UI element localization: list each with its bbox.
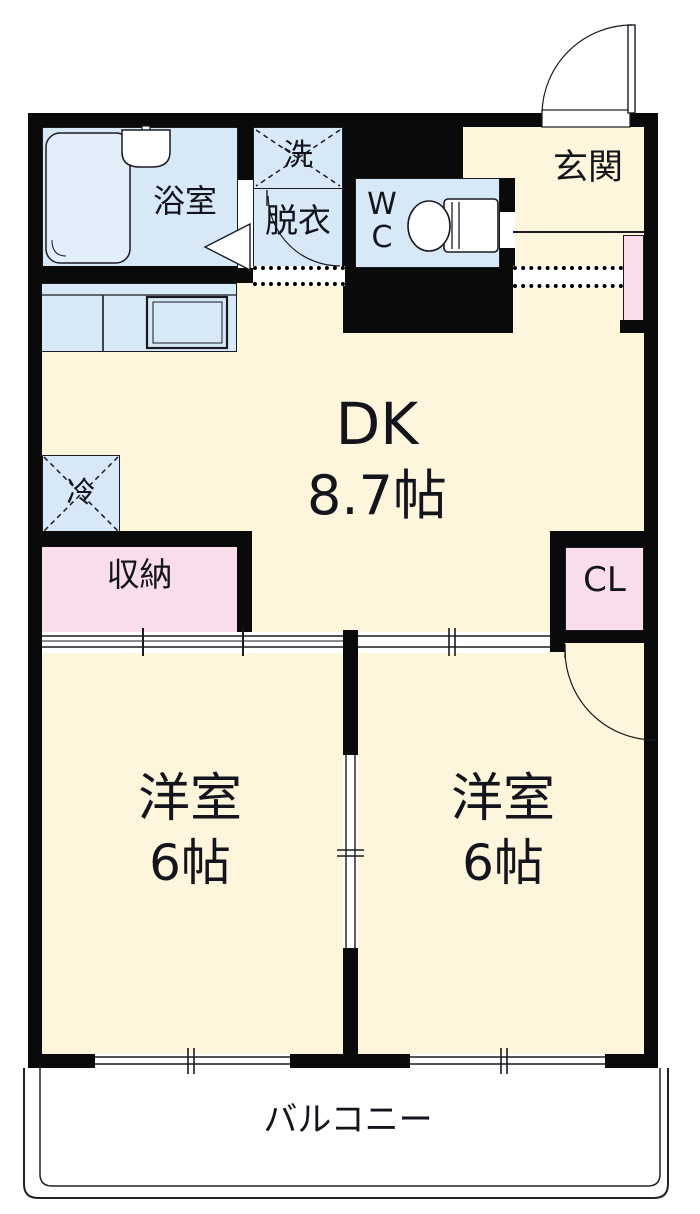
dk-name: DK <box>336 394 419 455</box>
dk-size: 8.7帖 <box>307 467 447 524</box>
fridge-label: 冷 <box>42 477 120 508</box>
window-right <box>410 1054 605 1068</box>
wall-wc-bottom <box>343 268 513 333</box>
dk-label: DK 8.7帖 <box>277 394 477 525</box>
bath-label: 浴室 <box>140 185 230 219</box>
wall-shoe-bottom <box>620 320 644 333</box>
entrance-step-dots <box>513 266 623 288</box>
wc-door-gap <box>500 212 515 248</box>
dressing-label: 脱衣 <box>249 204 347 239</box>
kitchen-counter <box>40 283 237 352</box>
dressing-threshold-dots <box>253 266 345 286</box>
wall-cl-left <box>550 545 565 652</box>
window-left <box>95 1054 290 1068</box>
storage-label: 収納 <box>42 558 237 593</box>
wall-center-pillar-top <box>343 630 358 755</box>
bedroom-right-name: 洋室 <box>451 772 555 827</box>
laundry-label: 洗 <box>253 140 343 172</box>
sliding-door-left <box>42 632 343 653</box>
bedroom-right-size: 6帖 <box>462 837 544 890</box>
wall-wc-top <box>343 113 463 178</box>
wall-bath-bottom <box>28 266 253 283</box>
bedroom-left-label: 洋室 6帖 <box>90 772 290 890</box>
wall-storage-right <box>237 545 252 633</box>
balcony-label: バルコニー <box>198 1102 498 1138</box>
wall-bath-laundry <box>238 113 253 183</box>
bedroom-right-label: 洋室 6帖 <box>403 772 603 890</box>
wall-left <box>28 113 42 1068</box>
bedroom-left-size: 6帖 <box>149 837 231 890</box>
entrance-threshold <box>542 110 630 127</box>
shoe-cabinet <box>623 235 644 323</box>
wall-cl-bottom <box>565 631 658 643</box>
sliding-door-rooms <box>343 755 358 948</box>
wall-fridge-bottom <box>28 531 252 547</box>
wall-right <box>644 113 658 1068</box>
floorplan: 浴室 洗 脱衣 W C 玄関 DK 8.7帖 冷 収納 CL 洋室 6帖 洋室 … <box>0 0 700 1214</box>
wc-label: W C <box>360 188 404 254</box>
entrance-label: 玄関 <box>533 150 643 187</box>
wall-center-pillar-bottom <box>343 948 358 1054</box>
sliding-door-right <box>358 632 550 653</box>
closet-label: CL <box>565 562 644 598</box>
bedroom-left-name: 洋室 <box>138 772 242 827</box>
